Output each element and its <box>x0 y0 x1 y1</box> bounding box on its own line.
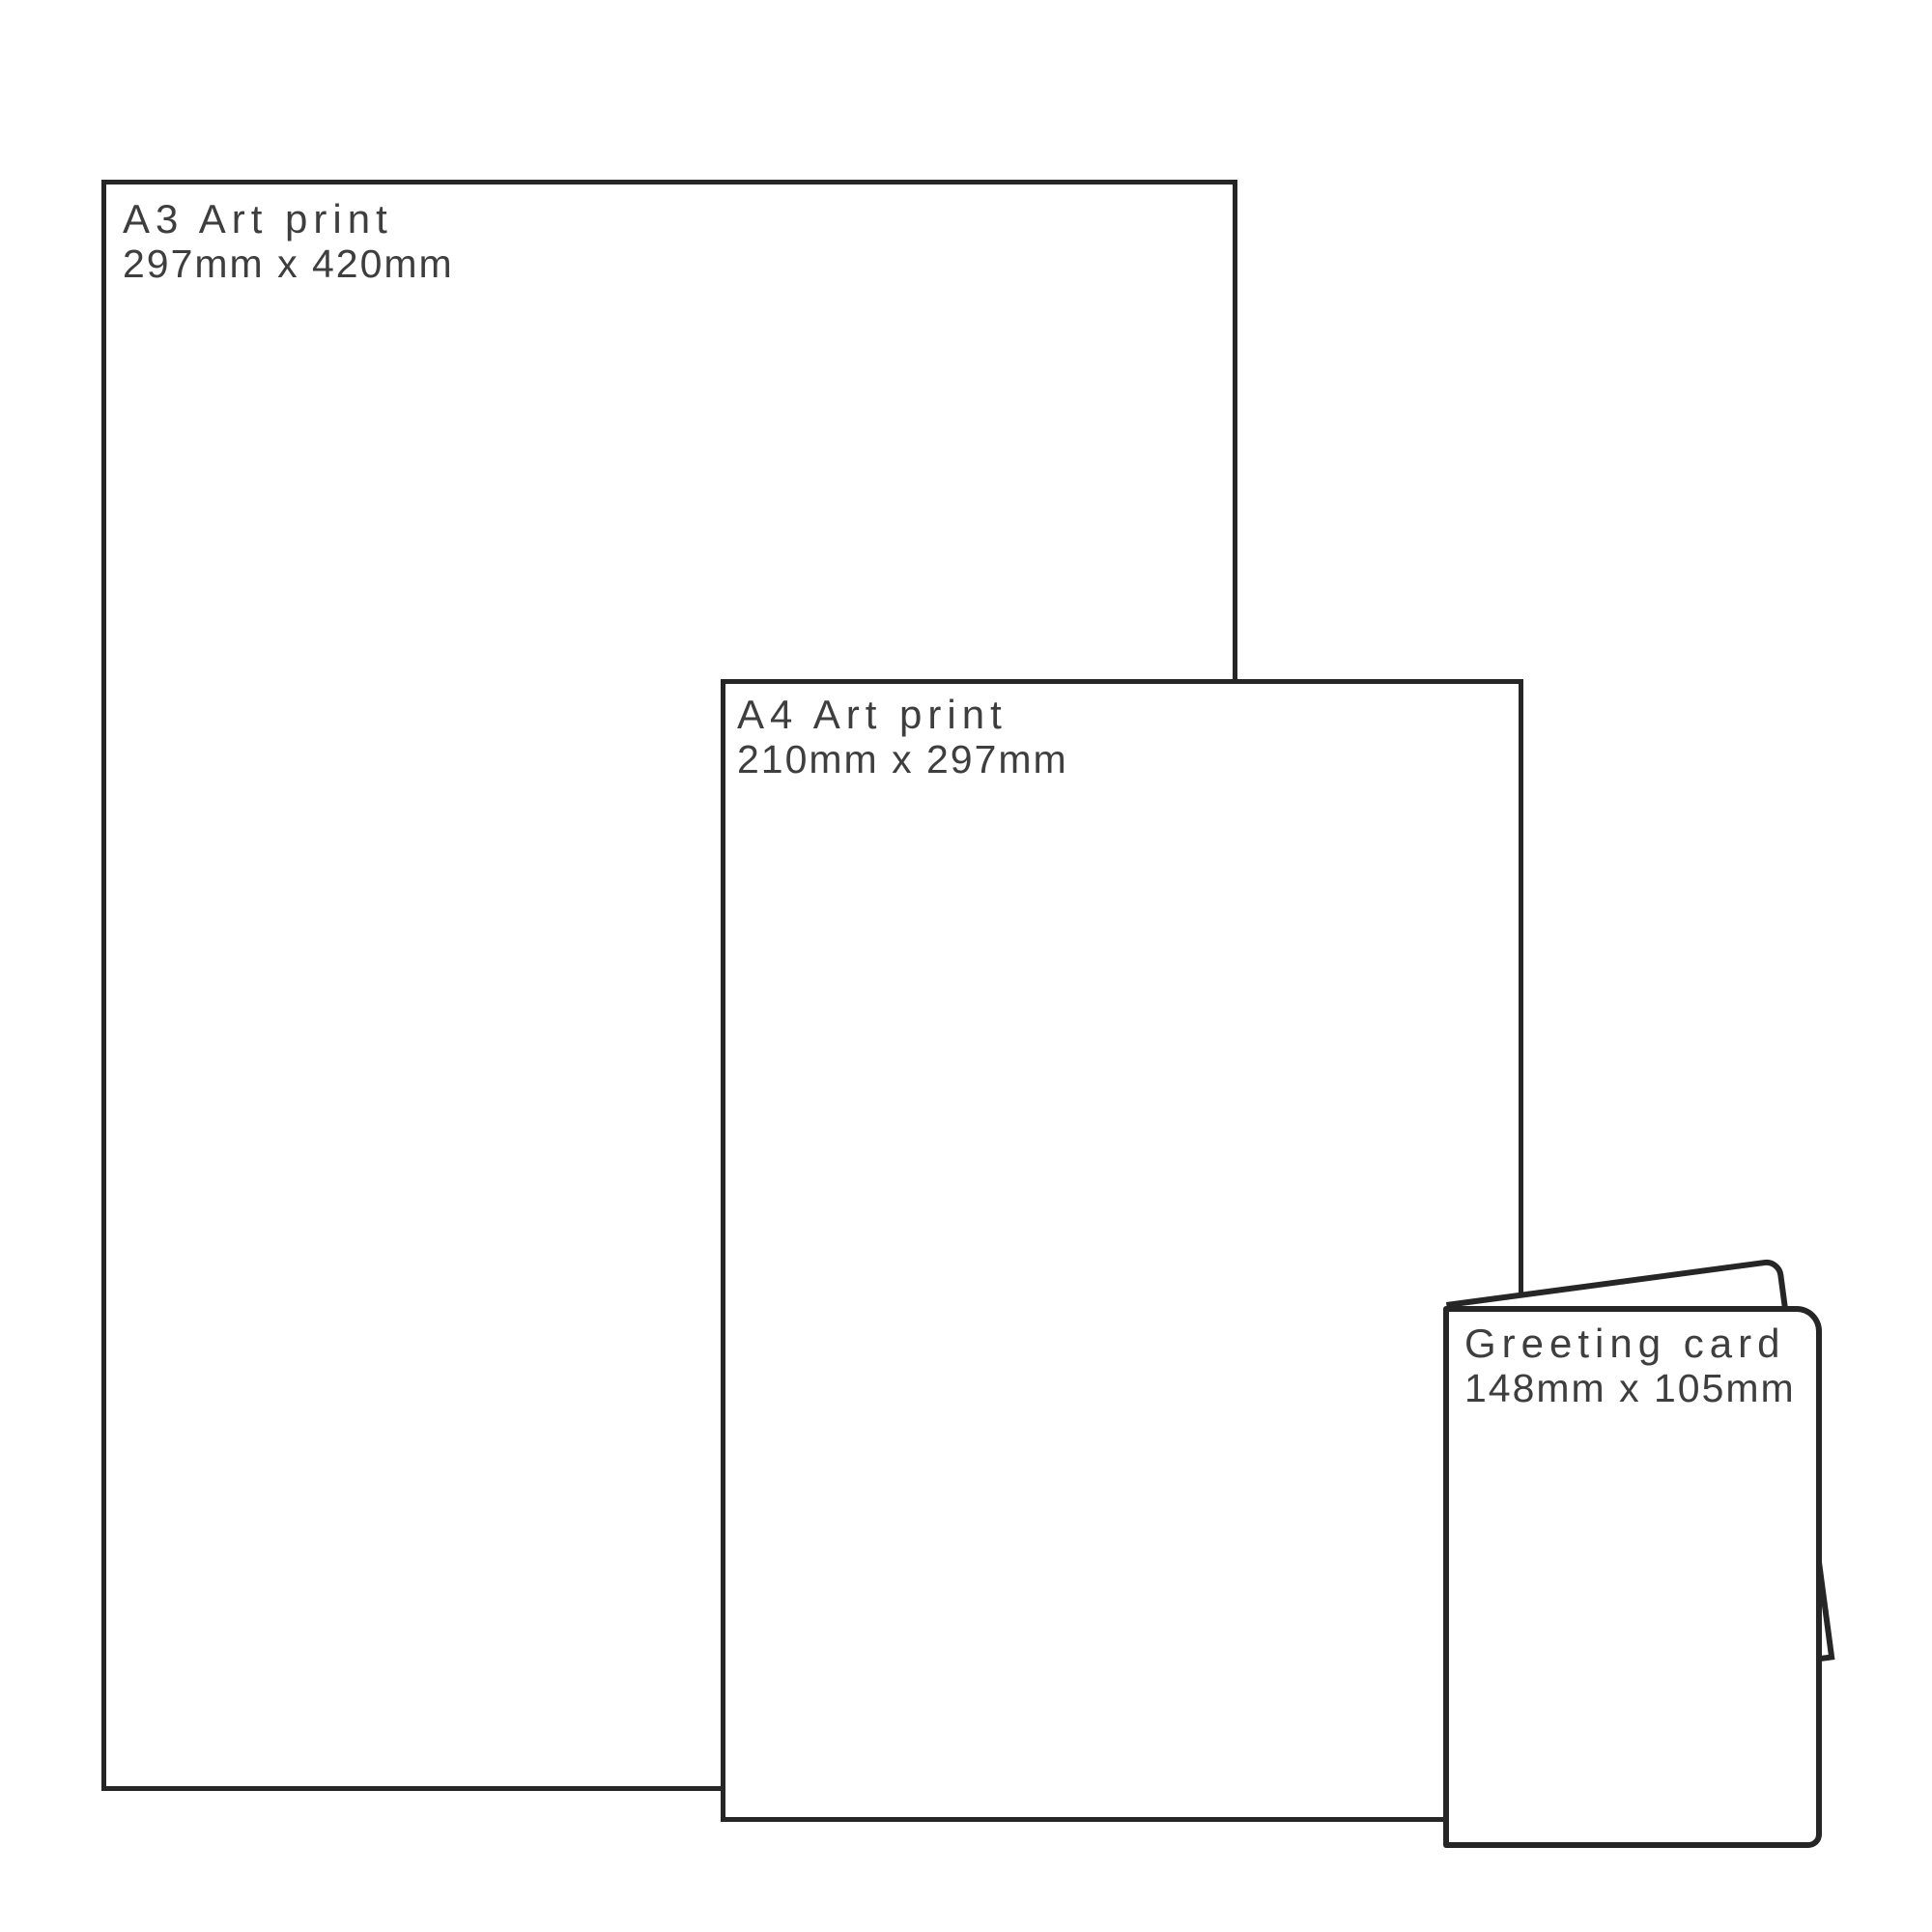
a3-label: A3 Art print 297mm x 420mm <box>123 196 454 286</box>
a4-title: A4 Art print <box>737 692 1068 738</box>
a3-dimensions: 297mm x 420mm <box>123 242 454 286</box>
a4-label: A4 Art print 210mm x 297mm <box>737 692 1068 781</box>
a4-dimensions: 210mm x 297mm <box>737 738 1068 781</box>
size-comparison-diagram: A3 Art print 297mm x 420mm A4 Art print … <box>0 0 1932 1932</box>
a3-title: A3 Art print <box>123 196 454 242</box>
greeting-card-title: Greeting card <box>1464 1321 1796 1367</box>
greeting-card-panel: Greeting card 148mm x 105mm <box>1443 1306 1822 1848</box>
greeting-card-dimensions: 148mm x 105mm <box>1464 1367 1796 1410</box>
a4-print-panel: A4 Art print 210mm x 297mm <box>721 679 1523 1822</box>
greeting-card-label: Greeting card 148mm x 105mm <box>1464 1321 1796 1410</box>
